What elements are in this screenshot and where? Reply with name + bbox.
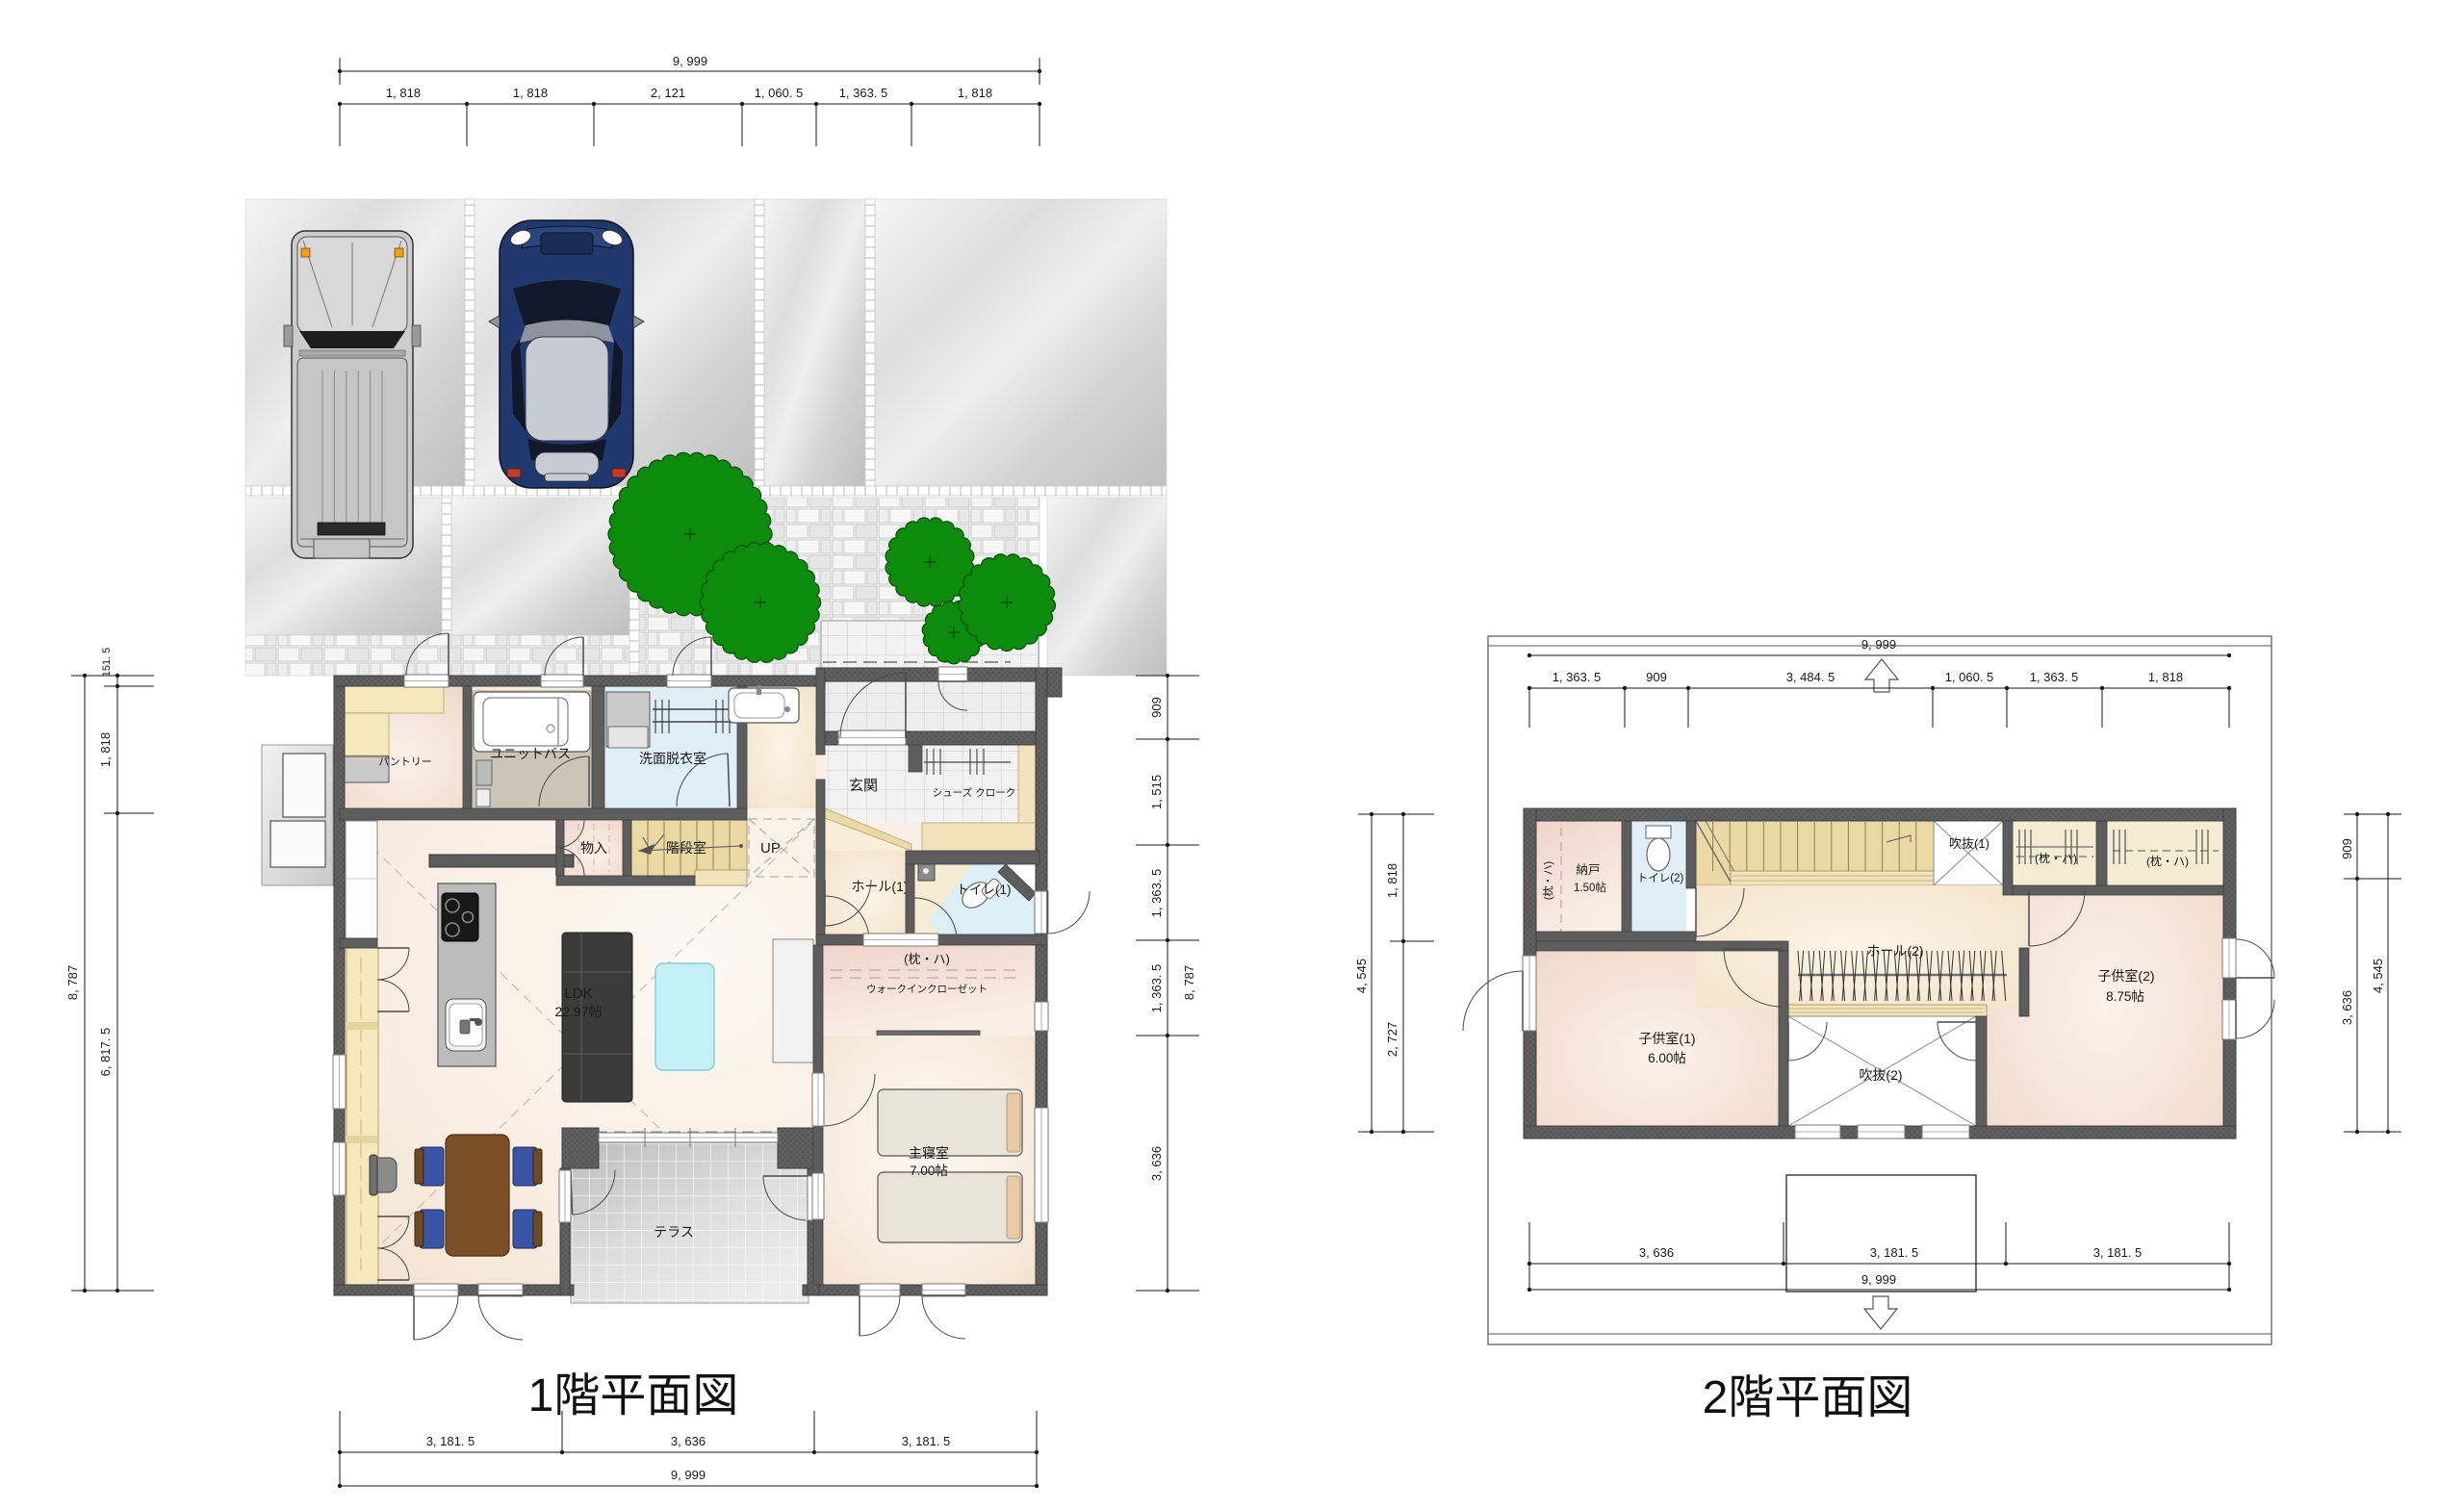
svg-text:1, 060. 5: 1, 060. 5 <box>1945 670 1994 684</box>
svg-text:ホール(2): ホール(2) <box>1866 943 1923 959</box>
svg-text:6.00帖: 6.00帖 <box>1648 1051 1686 1065</box>
svg-text:909: 909 <box>1149 697 1164 718</box>
svg-text:1, 818: 1, 818 <box>958 86 992 100</box>
svg-text:9, 999: 9, 999 <box>1861 1272 1896 1287</box>
svg-text:6, 817. 5: 6, 817. 5 <box>98 1028 113 1077</box>
svg-text:3, 181. 5: 3, 181. 5 <box>426 1434 475 1448</box>
svg-text:ホール(1): ホール(1) <box>851 879 908 894</box>
svg-text:1階平面図: 1階平面図 <box>528 1370 739 1421</box>
svg-text:3, 636: 3, 636 <box>671 1434 706 1448</box>
svg-text:1, 818: 1, 818 <box>2148 670 2183 684</box>
svg-text:1, 515: 1, 515 <box>1149 775 1164 809</box>
svg-text:1, 060. 5: 1, 060. 5 <box>755 86 804 100</box>
svg-text:1, 818: 1, 818 <box>386 86 421 100</box>
svg-text:ウォークインクローゼット: ウォークインクローゼット <box>866 984 988 995</box>
svg-text:1, 818: 1, 818 <box>98 732 113 767</box>
svg-text:3, 636: 3, 636 <box>1639 1245 1674 1260</box>
svg-text:1, 363. 5: 1, 363. 5 <box>2030 670 2079 684</box>
svg-text:UP: UP <box>760 840 781 857</box>
svg-text:(枕・ハ): (枕・ハ) <box>1541 861 1554 900</box>
svg-text:909: 909 <box>2340 838 2354 859</box>
svg-text:4, 545: 4, 545 <box>2371 959 2385 993</box>
svg-text:1, 363. 5: 1, 363. 5 <box>1553 670 1602 684</box>
svg-text:物入: 物入 <box>580 840 607 856</box>
svg-text:テラス: テラス <box>654 1224 694 1240</box>
svg-text:ユニットバス: ユニットバス <box>490 746 571 761</box>
svg-text:子供室(2): 子供室(2) <box>2097 968 2154 984</box>
svg-text:8.75帖: 8.75帖 <box>2106 989 2144 1004</box>
svg-text:吹抜(2): 吹抜(2) <box>1859 1067 1902 1083</box>
svg-text:主寝室: 主寝室 <box>909 1145 949 1161</box>
svg-text:151. 5: 151. 5 <box>101 648 113 678</box>
svg-text:1, 818: 1, 818 <box>513 86 548 100</box>
svg-text:22.97帖: 22.97帖 <box>554 1004 602 1019</box>
svg-text:3, 636: 3, 636 <box>1149 1146 1164 1181</box>
svg-text:洗面脱衣室: 洗面脱衣室 <box>639 751 706 766</box>
svg-text:9, 999: 9, 999 <box>671 1468 706 1482</box>
svg-text:トイレ(2): トイレ(2) <box>1637 873 1684 884</box>
svg-text:(枕・ハ): (枕・ハ) <box>2035 851 2077 865</box>
svg-text:納戸: 納戸 <box>1576 863 1600 877</box>
svg-text:7.00帖: 7.00帖 <box>910 1164 948 1178</box>
svg-text:LDK: LDK <box>564 985 592 1002</box>
svg-text:(枕・ハ): (枕・ハ) <box>2146 854 2189 868</box>
svg-text:1, 363. 5: 1, 363. 5 <box>839 86 888 100</box>
svg-text:パントリー: パントリー <box>378 755 432 768</box>
svg-text:3, 181. 5: 3, 181. 5 <box>2093 1245 2143 1260</box>
svg-text:4, 545: 4, 545 <box>1354 959 1369 993</box>
svg-text:2, 727: 2, 727 <box>1385 1022 1399 1057</box>
svg-text:9, 999: 9, 999 <box>1861 637 1896 652</box>
svg-text:1, 818: 1, 818 <box>1385 863 1399 898</box>
svg-text:玄関: 玄関 <box>849 778 878 794</box>
svg-text:9, 999: 9, 999 <box>673 54 707 68</box>
svg-text:3, 181. 5: 3, 181. 5 <box>902 1434 951 1448</box>
svg-text:(枕・ハ): (枕・ハ) <box>904 952 950 966</box>
svg-text:2階平面図: 2階平面図 <box>1703 1372 1913 1423</box>
svg-text:1, 363. 5: 1, 363. 5 <box>1149 869 1164 918</box>
svg-text:8, 787: 8, 787 <box>65 965 80 1000</box>
svg-text:子供室(1): 子供室(1) <box>1638 1031 1695 1046</box>
svg-text:1.50帖: 1.50帖 <box>1574 881 1606 894</box>
svg-text:吹抜(1): 吹抜(1) <box>1949 836 1989 851</box>
svg-text:3, 181. 5: 3, 181. 5 <box>1870 1245 1919 1260</box>
svg-text:シューズ クローク: シューズ クローク <box>933 786 1015 799</box>
svg-text:2, 121: 2, 121 <box>651 86 685 100</box>
svg-text:3, 484. 5: 3, 484. 5 <box>1786 670 1835 684</box>
svg-text:3, 636: 3, 636 <box>2340 990 2354 1025</box>
svg-text:トイレ(1): トイレ(1) <box>957 883 1012 897</box>
svg-text:8, 787: 8, 787 <box>1182 965 1196 1000</box>
svg-text:1, 363. 5: 1, 363. 5 <box>1149 964 1164 1013</box>
svg-text:909: 909 <box>1646 670 1667 684</box>
